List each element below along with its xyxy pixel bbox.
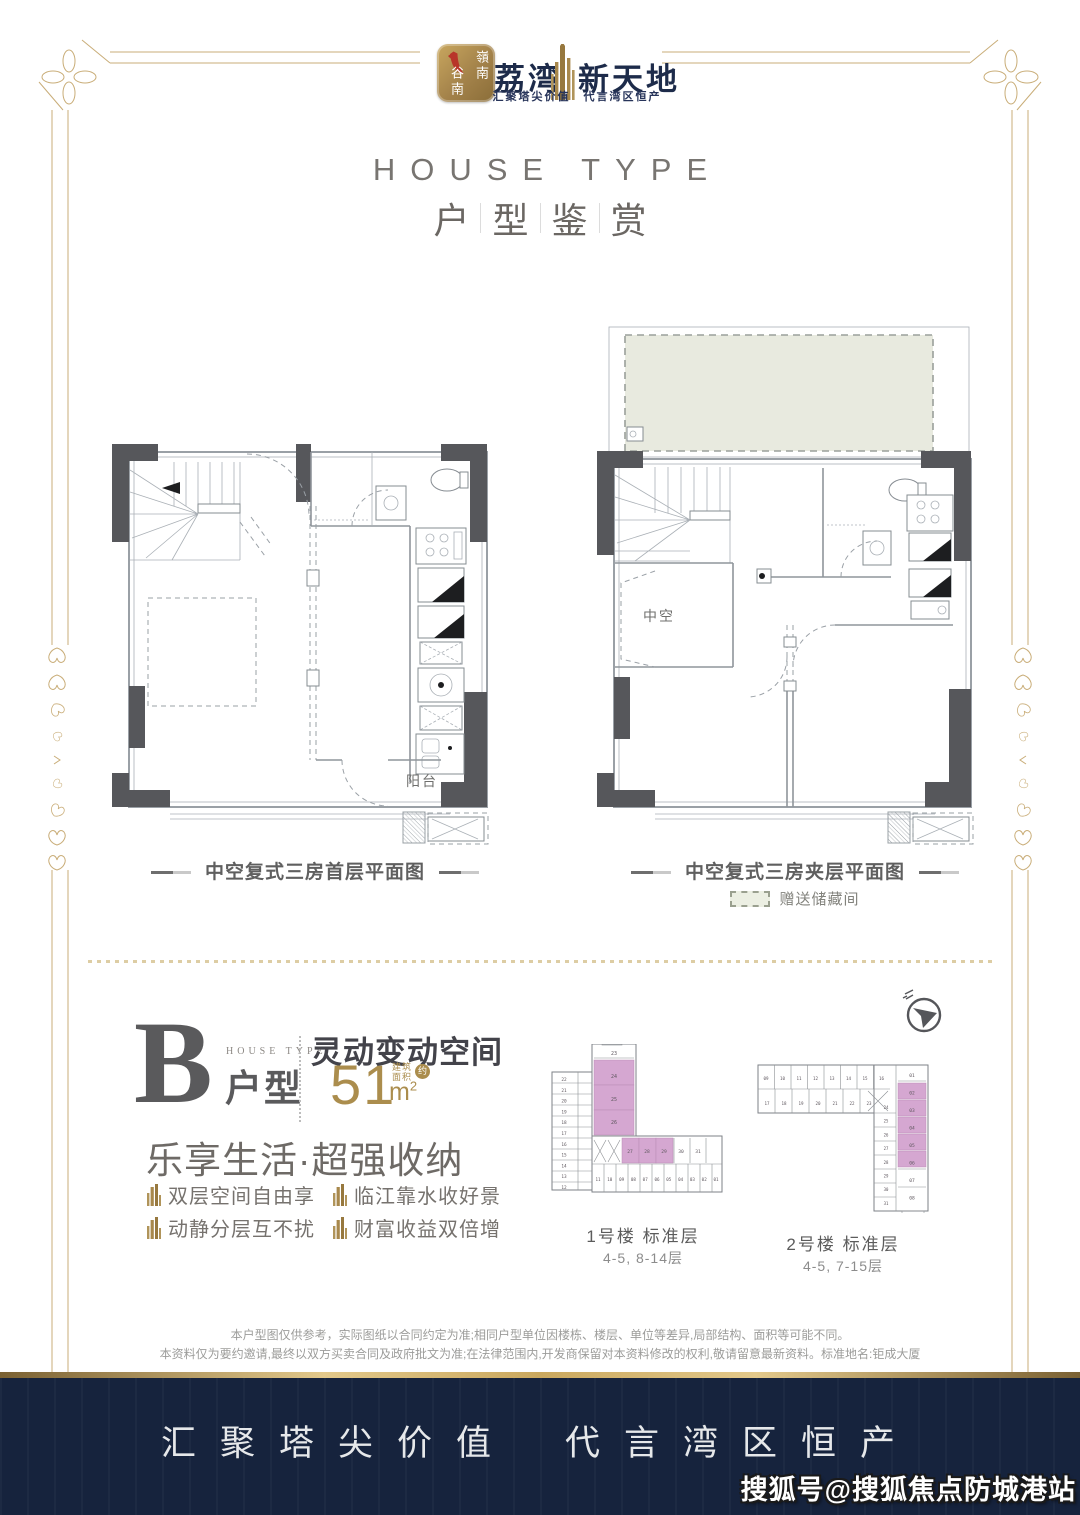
legend-swatch <box>730 891 770 907</box>
svg-text:30: 30 <box>678 1149 684 1155</box>
svg-text:05: 05 <box>909 1143 915 1149</box>
svg-text:31: 31 <box>695 1149 701 1155</box>
svg-text:13: 13 <box>561 1174 567 1180</box>
svg-text:12: 12 <box>813 1076 819 1081</box>
void-label: 中空 <box>643 608 675 624</box>
svg-text:09: 09 <box>763 1076 769 1081</box>
area-unit: m2 <box>389 1078 417 1107</box>
svg-text:18: 18 <box>781 1101 787 1106</box>
title-char: 户 <box>422 192 480 244</box>
disclaimer: 本户型图仅供参考，实际图纸以合同约定为准;相同户型单位因楼栋、楼层、单位等差异,… <box>0 1326 1080 1364</box>
svg-text:11: 11 <box>595 1177 601 1182</box>
balcony-label: 阳台 <box>406 773 438 789</box>
tower1-name: 1号楼 标准层 <box>548 1222 738 1247</box>
title-char: 鉴 <box>541 192 599 244</box>
tower1-floorplate: 23242526 2221201918171615141312 27282930… <box>548 1044 728 1194</box>
svg-text:08: 08 <box>909 1196 915 1202</box>
svg-text:25: 25 <box>611 1097 617 1103</box>
corner-flower-right <box>984 50 1038 104</box>
svg-text:27: 27 <box>884 1146 889 1151</box>
svg-text:04: 04 <box>678 1177 684 1182</box>
gift-storage-area <box>625 335 933 451</box>
footer-slogan: 汇聚塔尖价值代言湾区恒产 <box>0 1415 1080 1466</box>
brand-tagline: 汇聚塔尖价值 代言湾区恒产 <box>437 88 717 104</box>
svg-text:20: 20 <box>561 1099 567 1105</box>
svg-text:02: 02 <box>702 1177 708 1182</box>
unit-letter: B <box>134 1004 213 1122</box>
tower1-floors: 4-5, 8-14层 <box>548 1248 738 1268</box>
caption-ground-floor: 中空复式三房首层平面图 <box>115 857 515 884</box>
svg-text:28: 28 <box>884 1160 889 1165</box>
svg-text:17: 17 <box>764 1101 770 1106</box>
legend-label: 赠送储藏间 <box>779 888 859 909</box>
title-char: 型 <box>481 192 539 244</box>
svg-text:07: 07 <box>643 1177 649 1182</box>
svg-text:15: 15 <box>561 1153 567 1159</box>
unit-type-zh: 户型 <box>225 1058 303 1112</box>
svg-text:01: 01 <box>713 1177 719 1182</box>
svg-text:19: 19 <box>561 1109 567 1115</box>
svg-text:26: 26 <box>884 1132 889 1137</box>
svg-text:21: 21 <box>561 1088 567 1094</box>
svg-text:10: 10 <box>780 1076 786 1081</box>
svg-text:13: 13 <box>829 1076 835 1081</box>
svg-text:03: 03 <box>909 1108 915 1114</box>
tower2-floorplate: 0910111213141516 17181920212223 24252627… <box>756 1061 930 1213</box>
title-char: 赏 <box>600 192 658 244</box>
svg-text:26: 26 <box>611 1120 617 1126</box>
svg-text:08: 08 <box>631 1177 637 1182</box>
vertical-divider <box>299 1036 301 1122</box>
tower2-floors: 4-5, 7-15层 <box>756 1256 930 1276</box>
svg-text:20: 20 <box>815 1101 821 1106</box>
area-approx-badge: 约 <box>415 1064 430 1079</box>
svg-text:25: 25 <box>884 1119 889 1124</box>
svg-text:22: 22 <box>561 1077 567 1083</box>
section-divider <box>88 960 992 963</box>
svg-text:29: 29 <box>884 1174 889 1179</box>
svg-text:14: 14 <box>561 1163 567 1169</box>
svg-text:15: 15 <box>862 1076 868 1081</box>
svg-text:09: 09 <box>619 1177 625 1182</box>
disclaimer-line: 本户型图仅供参考，实际图纸以合同约定为准;相同户型单位因楼栋、楼层、单位等差异,… <box>0 1326 1080 1345</box>
svg-text:27: 27 <box>627 1149 633 1155</box>
north-compass-icon <box>893 984 949 1040</box>
feature-item: 双层空间自由享 <box>147 1180 315 1209</box>
badge-text-line1: 嶺南 <box>475 50 488 82</box>
svg-text:23: 23 <box>866 1101 872 1106</box>
svg-text:07: 07 <box>909 1178 915 1184</box>
corner-flower-left <box>42 50 96 104</box>
svg-text:24: 24 <box>611 1074 617 1080</box>
svg-text:10: 10 <box>607 1177 613 1182</box>
side-ornament-left <box>49 648 66 870</box>
unit-subtitle: 乐享生活·超强收纳 <box>146 1130 463 1184</box>
area-value: 51 <box>330 1052 396 1117</box>
feature-item: 财富收益双倍增 <box>333 1213 501 1242</box>
caption-mezzanine: 中空复式三房夹层平面图 <box>597 857 993 884</box>
feature-item: 动静分层互不扰 <box>147 1213 315 1242</box>
side-ornament-right <box>1015 648 1032 870</box>
svg-text:23: 23 <box>611 1051 617 1057</box>
svg-text:19: 19 <box>798 1101 804 1106</box>
svg-text:01: 01 <box>909 1073 915 1079</box>
svg-text:18: 18 <box>561 1120 567 1126</box>
floorplan-ground-floor: 阳台 <box>110 430 505 845</box>
svg-text:22: 22 <box>849 1101 855 1106</box>
disclaimer-line: 本资料仅为要约邀请,最终以双方买卖合同及政府批文为准;在法律范围内,开发商保留对… <box>0 1345 1080 1364</box>
svg-text:16: 16 <box>561 1142 567 1148</box>
watermark: 搜狐号@搜狐焦点防城港站 <box>741 1468 1076 1507</box>
poster-page: 嶺南 谷南 荔湾 新天地 汇聚塔尖价值 代言湾区恒产 HOUSE TYPE 户型… <box>0 0 1080 1515</box>
svg-text:11: 11 <box>796 1076 802 1081</box>
svg-text:04: 04 <box>909 1126 915 1132</box>
section-title-zh: 户型鉴赏 <box>0 192 1080 244</box>
svg-text:06: 06 <box>909 1161 915 1167</box>
svg-text:31: 31 <box>884 1201 889 1206</box>
tower-bullet-icon <box>333 1184 347 1206</box>
svg-text:29: 29 <box>661 1149 667 1155</box>
tower-bullet-icon <box>147 1184 161 1206</box>
svg-text:17: 17 <box>561 1131 567 1137</box>
svg-text:06: 06 <box>654 1177 660 1182</box>
floorplan-mezzanine: 中空 <box>595 325 985 845</box>
tower-bullet-icon <box>333 1217 347 1239</box>
svg-text:02: 02 <box>909 1091 915 1097</box>
tower2-name: 2号楼 标准层 <box>756 1230 930 1255</box>
svg-text:16: 16 <box>879 1076 885 1081</box>
tower-bullet-icon <box>147 1217 161 1239</box>
svg-text:14: 14 <box>846 1076 852 1081</box>
svg-text:05: 05 <box>666 1177 672 1182</box>
svg-text:30: 30 <box>884 1187 889 1192</box>
svg-text:03: 03 <box>690 1177 696 1182</box>
storage-legend: 赠送储藏间 <box>597 888 993 909</box>
svg-text:24: 24 <box>884 1105 889 1110</box>
section-title-en: HOUSE TYPE <box>0 152 1080 188</box>
svg-text:12: 12 <box>561 1185 567 1191</box>
svg-text:28: 28 <box>644 1149 650 1155</box>
feature-item: 临江靠水收好景 <box>333 1180 501 1209</box>
svg-text:21: 21 <box>832 1101 838 1106</box>
